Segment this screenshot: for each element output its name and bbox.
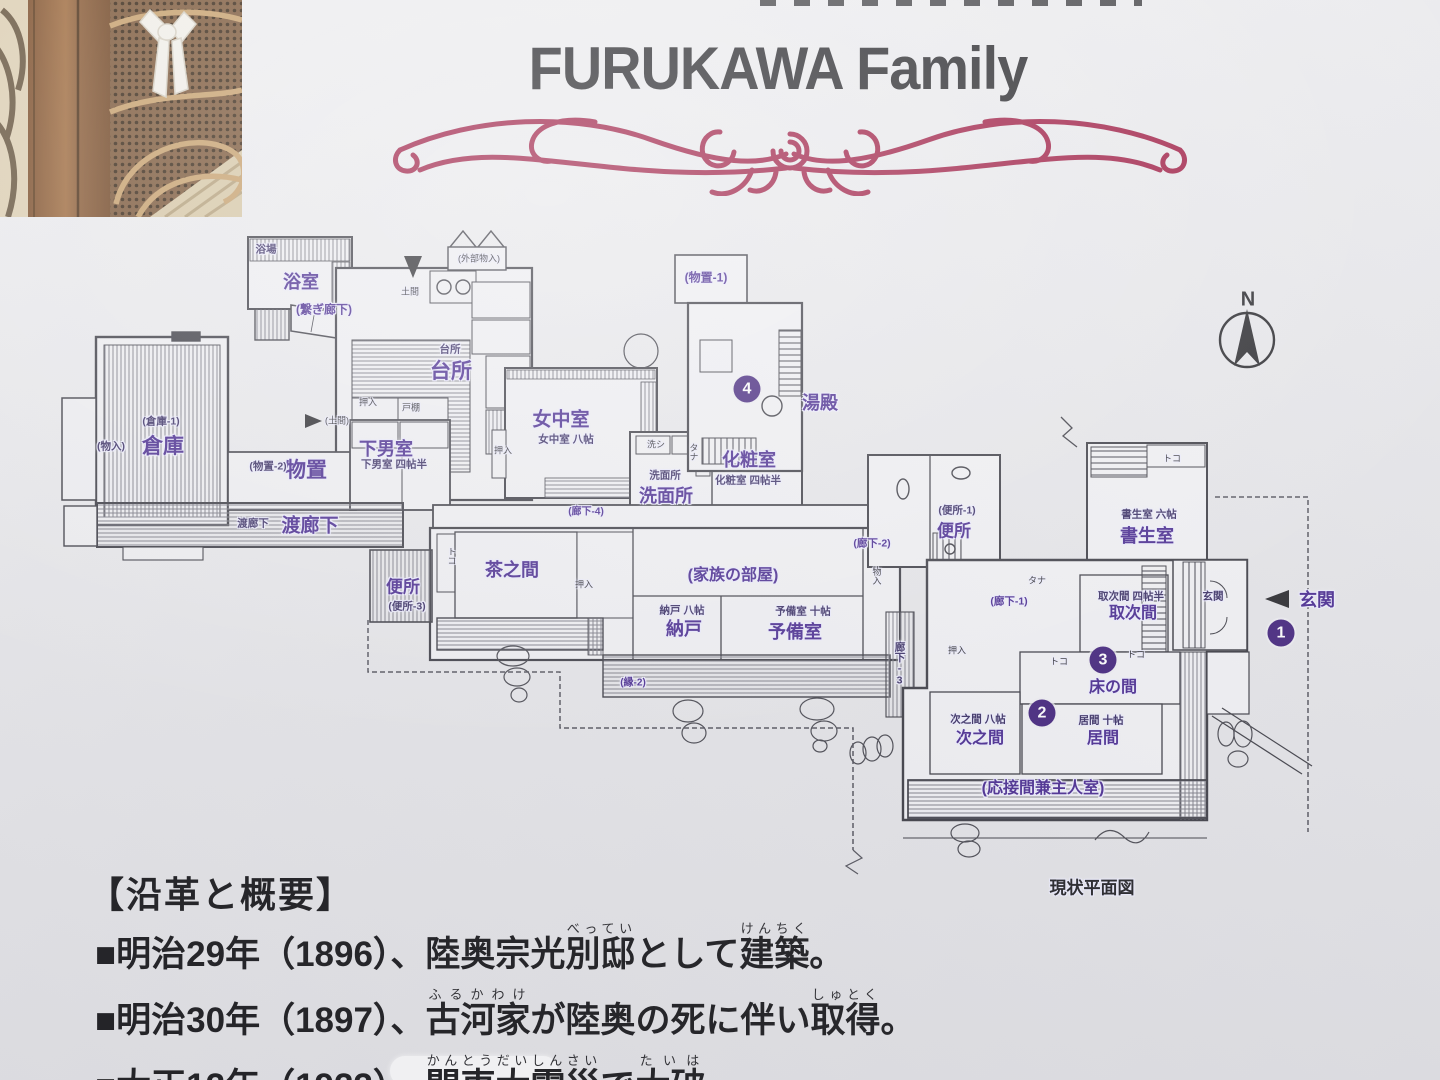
room-label: 茶之間: [485, 556, 539, 582]
room-label: (家族の部屋): [688, 561, 779, 585]
numbered-marker-1: 1: [1268, 620, 1295, 647]
plan-label: 廊下-3: [893, 642, 908, 687]
numbered-marker-4: 4: [734, 376, 761, 403]
room-label: 書生室: [1120, 522, 1174, 548]
room-label: 湯殿: [802, 389, 838, 415]
plan-label: (物置-2): [249, 459, 286, 474]
plan-label: 居間 十帖: [1079, 713, 1124, 728]
numbered-marker-2: 2: [1029, 700, 1056, 727]
plan-label: タナ: [688, 443, 701, 461]
plan-label: 土間: [401, 285, 419, 298]
room-label: (縁-2): [620, 674, 646, 689]
plan-label: タナ: [1028, 574, 1046, 587]
plan-label: トコ: [1127, 648, 1145, 661]
history-line: ■明治30年（1897）、古河家ふるかわけが陸奥の死に伴い取得しゅとく。: [95, 982, 916, 1048]
room-label: 物置: [285, 454, 327, 484]
room-label: 女中室: [532, 405, 589, 432]
room-label: 台所: [430, 355, 472, 385]
plan-label: 物入: [871, 567, 884, 585]
history-line: ■明治29年（1896）、陸奥宗光別邸べっていとして建築けんちく。: [95, 916, 916, 982]
plan-label: 取次間 四帖半: [1098, 589, 1164, 604]
entrance-label: 玄関: [1299, 586, 1335, 612]
plan-label: 化粧室 四帖半: [715, 473, 781, 488]
room-label: 次之間: [956, 724, 1004, 748]
room-label: 便所: [937, 517, 971, 542]
plan-label: 納戸 八帖: [660, 603, 705, 618]
room-label: 化粧室: [722, 446, 776, 472]
signboard: FURUKAWA Family: [0, 0, 1440, 1080]
room-label: 浴室: [283, 268, 319, 294]
plan-label: 押入: [948, 644, 966, 657]
plan-label: 押入: [494, 444, 512, 457]
plan-caption: 現状平面図: [1050, 874, 1135, 899]
room-label: 居間: [1087, 724, 1119, 748]
plan-label: 洗面所: [649, 468, 681, 483]
plan-label: 次之間 八帖: [950, 712, 1005, 727]
room-label: 予備室: [768, 618, 822, 644]
room-label: (廊下-1): [990, 594, 1027, 609]
room-label: (応接間兼主人室): [982, 774, 1105, 798]
plan-label: 洗シ: [647, 438, 665, 451]
history-lines: ■明治29年（1896）、陸奥宗光別邸べっていとして建築けんちく。■明治30年（…: [95, 916, 916, 1080]
plan-label: トコ: [1163, 452, 1181, 465]
history-heading: 【沿革と概要】: [88, 866, 354, 918]
plan-label: (土間): [325, 414, 349, 427]
plan-label: 押入: [575, 578, 593, 591]
plan-label: トコ: [446, 547, 459, 565]
plan-label: トコ: [1050, 655, 1068, 668]
plan-label: 押入: [359, 396, 377, 409]
room-label: (廊下-4): [568, 503, 604, 518]
plan-label: 書生室 六帖: [1121, 507, 1176, 522]
room-label: 渡廊下: [281, 511, 338, 538]
room-label: 洗面所: [639, 482, 693, 508]
plan-label: 下男室 四帖半: [361, 457, 427, 472]
plan-label: 玄関: [1203, 589, 1224, 604]
plan-label: 戸棚: [402, 401, 420, 414]
plan-label: (外部物入): [458, 252, 500, 265]
plan-label: 台所: [440, 342, 461, 357]
room-label: 納戸: [666, 615, 702, 641]
plan-label: 渡廊下: [237, 516, 269, 531]
plan-label: (便所-1): [938, 503, 975, 518]
room-label: (廊下-2): [853, 536, 890, 551]
room-label: (繋ぎ廊下): [296, 301, 352, 318]
plan-label: (物入): [97, 439, 125, 454]
plan-label: (便所-3): [388, 599, 425, 614]
room-label: 倉庫: [142, 430, 184, 460]
plan-label: 予備室 十帖: [775, 604, 830, 619]
plan-label: (倉庫-1): [142, 414, 179, 429]
plan-label: 女中室 八帖: [538, 432, 593, 447]
room-label: (物置-1): [685, 269, 728, 286]
numbered-marker-3: 3: [1090, 647, 1117, 674]
plan-label: N: [1241, 289, 1255, 312]
history-line: ■大正12年（1923）、関東大震災かんとうだいしんさいで大破たいは。: [95, 1048, 916, 1080]
room-label: 床の間: [1089, 673, 1137, 697]
room-label: 便所: [386, 573, 420, 598]
plan-label: 浴場: [256, 242, 277, 257]
